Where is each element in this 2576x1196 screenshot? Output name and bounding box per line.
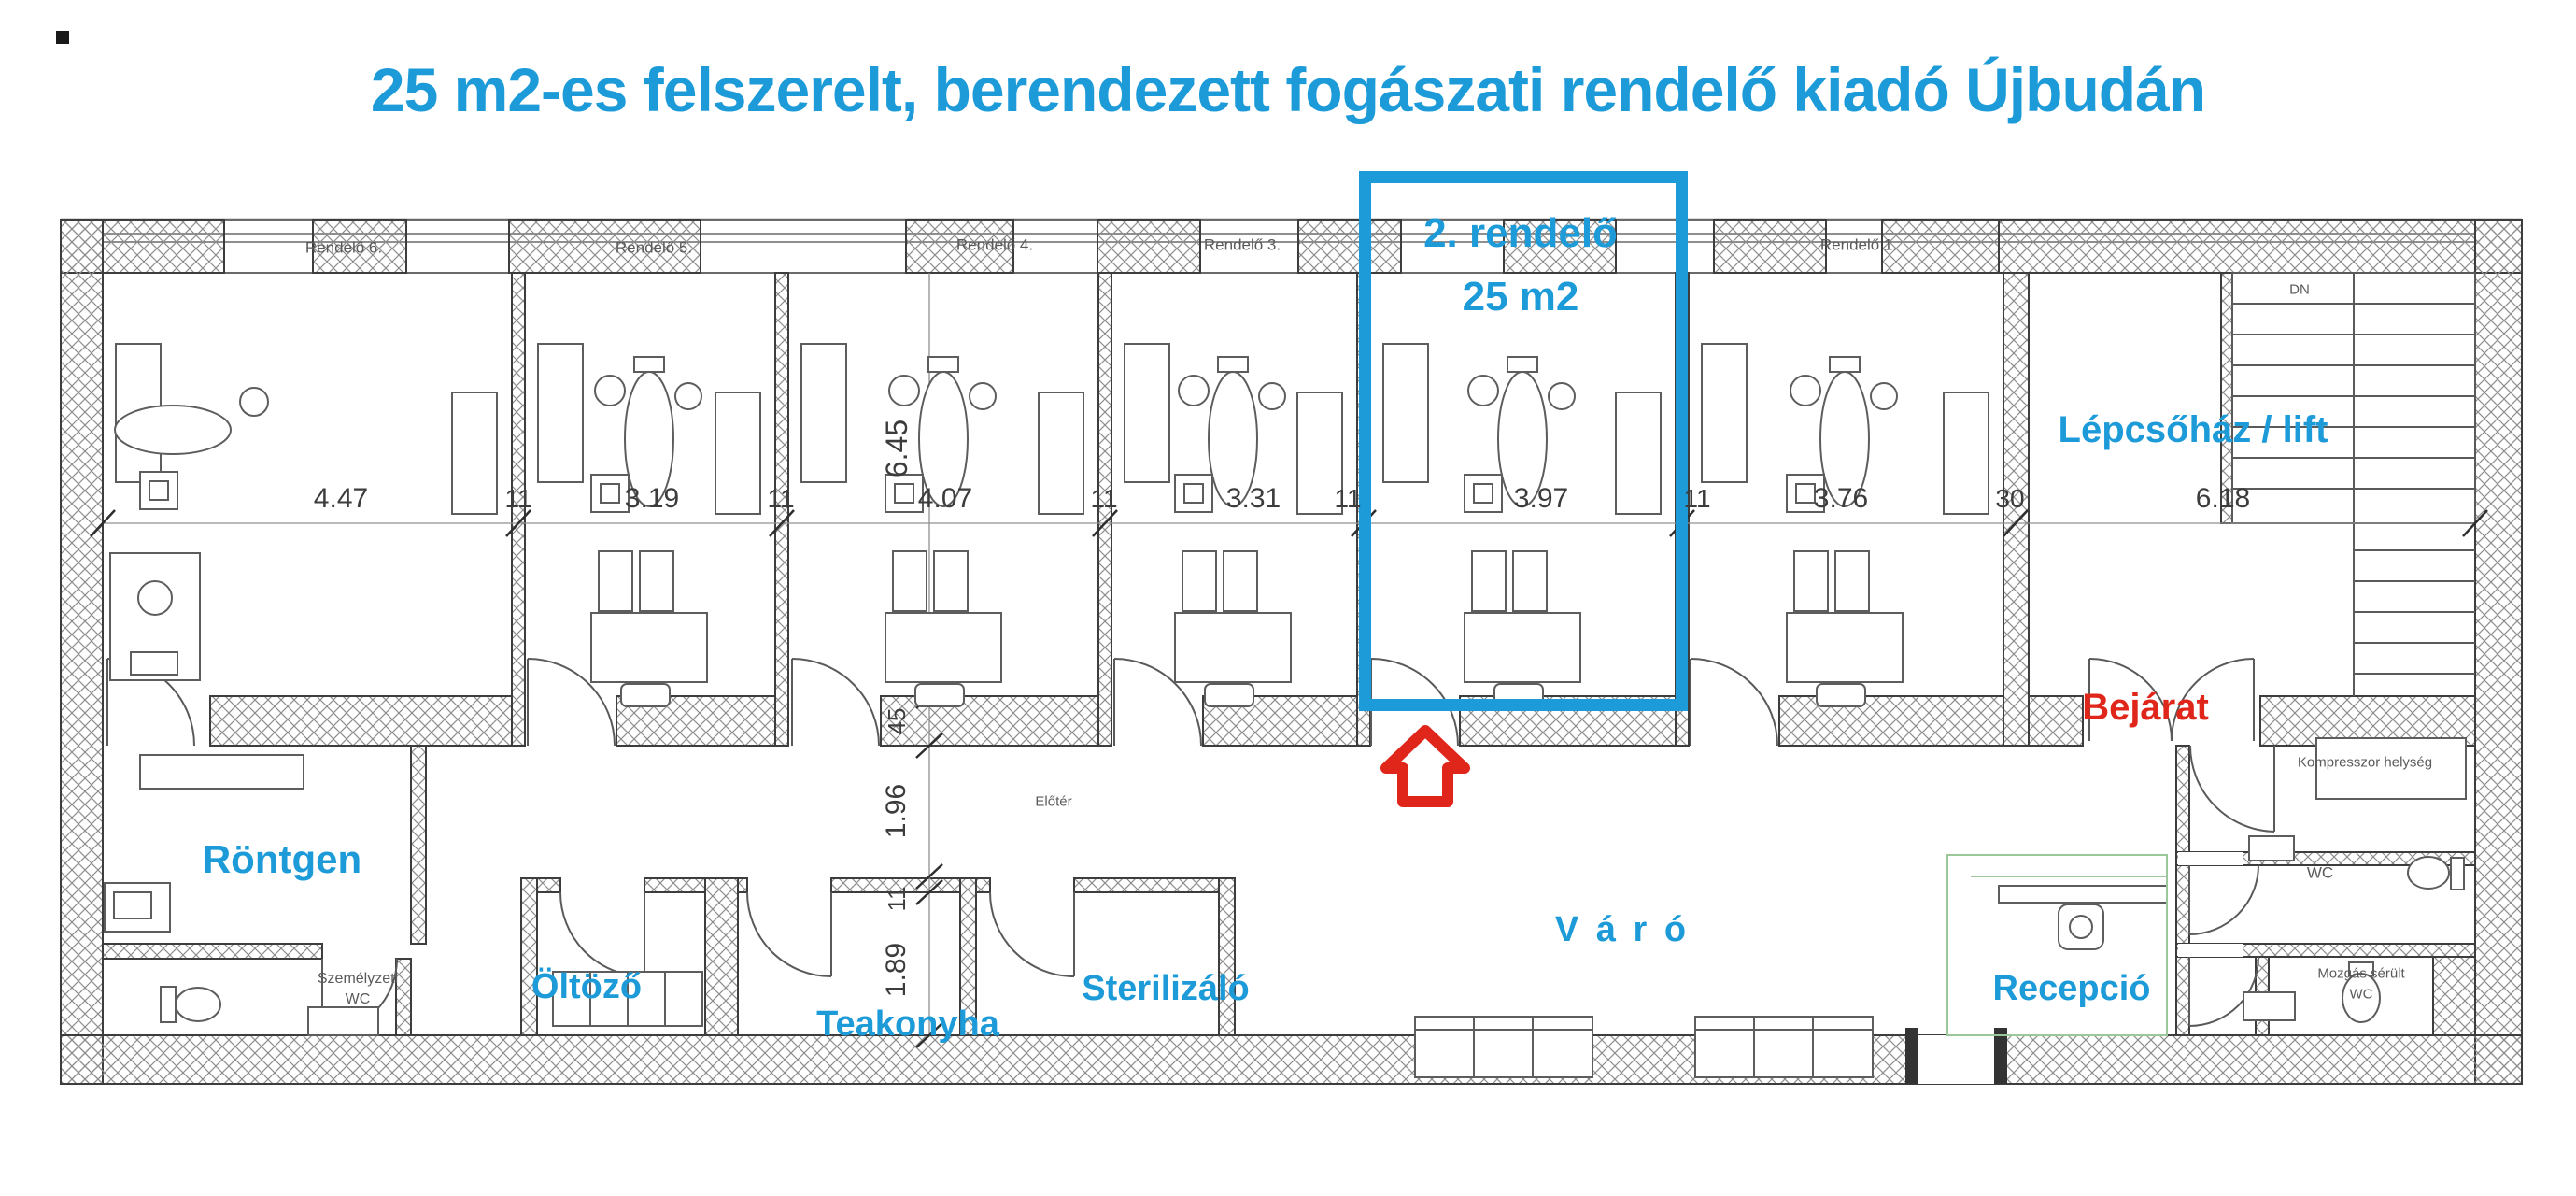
bottom-wall (61, 1035, 2522, 1084)
dim-top-5: 11 (1090, 486, 1117, 512)
disabled-wc-label-line2: WC (2350, 988, 2373, 1002)
area-label-waiting: V á r ó (1555, 912, 1690, 947)
reception-zone-outline (1947, 855, 2167, 1035)
dim-left-1: 45 (885, 708, 909, 735)
area-label-sterilizing: Sterilizáló (1082, 971, 1250, 1006)
dim-top-0: 4.47 (314, 485, 368, 513)
right-wall (2475, 220, 2522, 1084)
area-label-xray: Röntgen (203, 840, 361, 879)
dim-left-0: 6.45 (882, 420, 912, 477)
area-label-stairs: Lépcsőház / lift (2059, 411, 2328, 448)
room-label-rendelo-5: Rendelő 5. (616, 240, 692, 256)
dim-top-11: 30 (1995, 486, 2024, 512)
xray-table-icon (140, 755, 304, 789)
area-label-reception: Recepció (1993, 971, 2151, 1006)
highlight-room-area: 25 m2 (1463, 277, 1579, 318)
highlight-room-name: 2. rendelő (1423, 213, 1618, 254)
dim-top-9: 11 (1683, 486, 1710, 512)
dim-top-2: 3.19 (625, 485, 679, 513)
xray-chair-icon (110, 388, 268, 680)
wc-label: WC (2307, 865, 2333, 881)
reception-desk-icon (1999, 886, 2167, 949)
disabled-wc-label-line1: Mozgás sérült (2317, 967, 2404, 981)
dim-left-2: 1.96 (883, 784, 911, 838)
floor-plan-page: 25 m2-es felszerelt, berendezett fogásza… (0, 0, 2576, 1196)
area-label-entrance: Bejárat (2082, 689, 2209, 726)
dim-top-4: 4.07 (918, 485, 972, 513)
room-label-rendelo-6: Rendelő 6. (305, 240, 382, 256)
area-label-dressing: Öltöző (531, 969, 642, 1004)
room-label-rendelo-4: Rendelő 4. (956, 237, 1033, 253)
staff-wc-label-line1: Személyzeti (318, 972, 398, 987)
stairs-dn-label: DN (2289, 283, 2310, 297)
dim-top-12: 6.18 (2196, 485, 2250, 513)
dim-top-7: 11 (1334, 486, 1361, 512)
dim-top-1: 11 (504, 486, 531, 512)
room-label-rendelo-1: Rendelő 1. (1820, 237, 1897, 253)
area-label-kitchen: Teakonyha (816, 1006, 999, 1042)
staircase (2232, 273, 2475, 696)
dim-top-3: 11 (767, 486, 794, 512)
hall-label: Előtér (1035, 795, 1071, 809)
dim-left-4: 1.89 (883, 943, 911, 997)
compressor-label: Kompresszor helység (2298, 756, 2432, 770)
staff-desk-icon (308, 1007, 378, 1035)
staff-wc-label-line2: WC (346, 992, 371, 1007)
highlight-arrow-icon (1386, 731, 1465, 802)
dim-top-6: 3.31 (1226, 485, 1281, 513)
left-wall (61, 220, 103, 1084)
floor-plan-drawing (0, 0, 2576, 1196)
dim-left-3: 11 (885, 887, 909, 912)
room-label-rendelo-3: Rendelő 3. (1204, 237, 1281, 253)
toilet-icon (161, 987, 220, 1022)
dim-top-10: 3.76 (1814, 485, 1868, 513)
dim-top-8: 3.97 (1514, 485, 1568, 513)
